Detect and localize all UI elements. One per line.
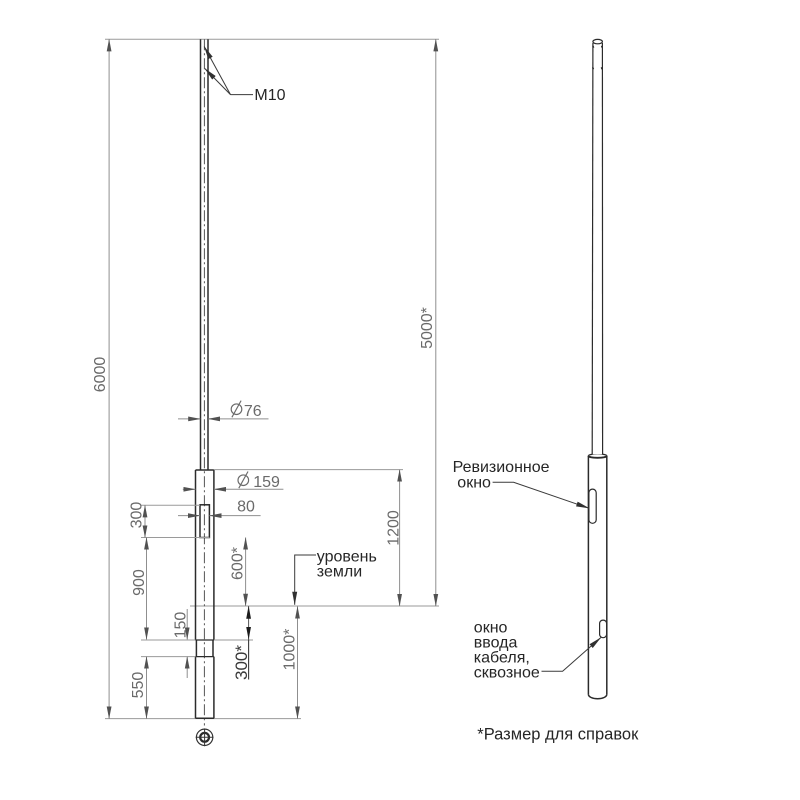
svg-text:76: 76	[244, 403, 262, 420]
svg-text:5000*: 5000*	[419, 307, 436, 349]
svg-text:150: 150	[173, 612, 190, 639]
svg-text:*Размер для справок: *Размер для справок	[477, 725, 639, 743]
svg-text:M10: M10	[254, 87, 285, 104]
svg-text:550: 550	[130, 672, 147, 699]
svg-text:1000*: 1000*	[282, 629, 299, 671]
svg-text:80: 80	[237, 499, 255, 516]
svg-text:159: 159	[253, 474, 280, 491]
svg-text:окно: окно	[457, 474, 491, 491]
svg-text:6000: 6000	[92, 357, 109, 393]
svg-text:сквозное: сквозное	[474, 664, 540, 681]
svg-text:300*: 300*	[232, 645, 251, 680]
svg-text:600*: 600*	[230, 547, 247, 580]
svg-text:земли: земли	[317, 564, 362, 581]
svg-text:300: 300	[129, 502, 146, 529]
svg-text:1200: 1200	[385, 510, 402, 546]
svg-text:900: 900	[131, 569, 148, 596]
